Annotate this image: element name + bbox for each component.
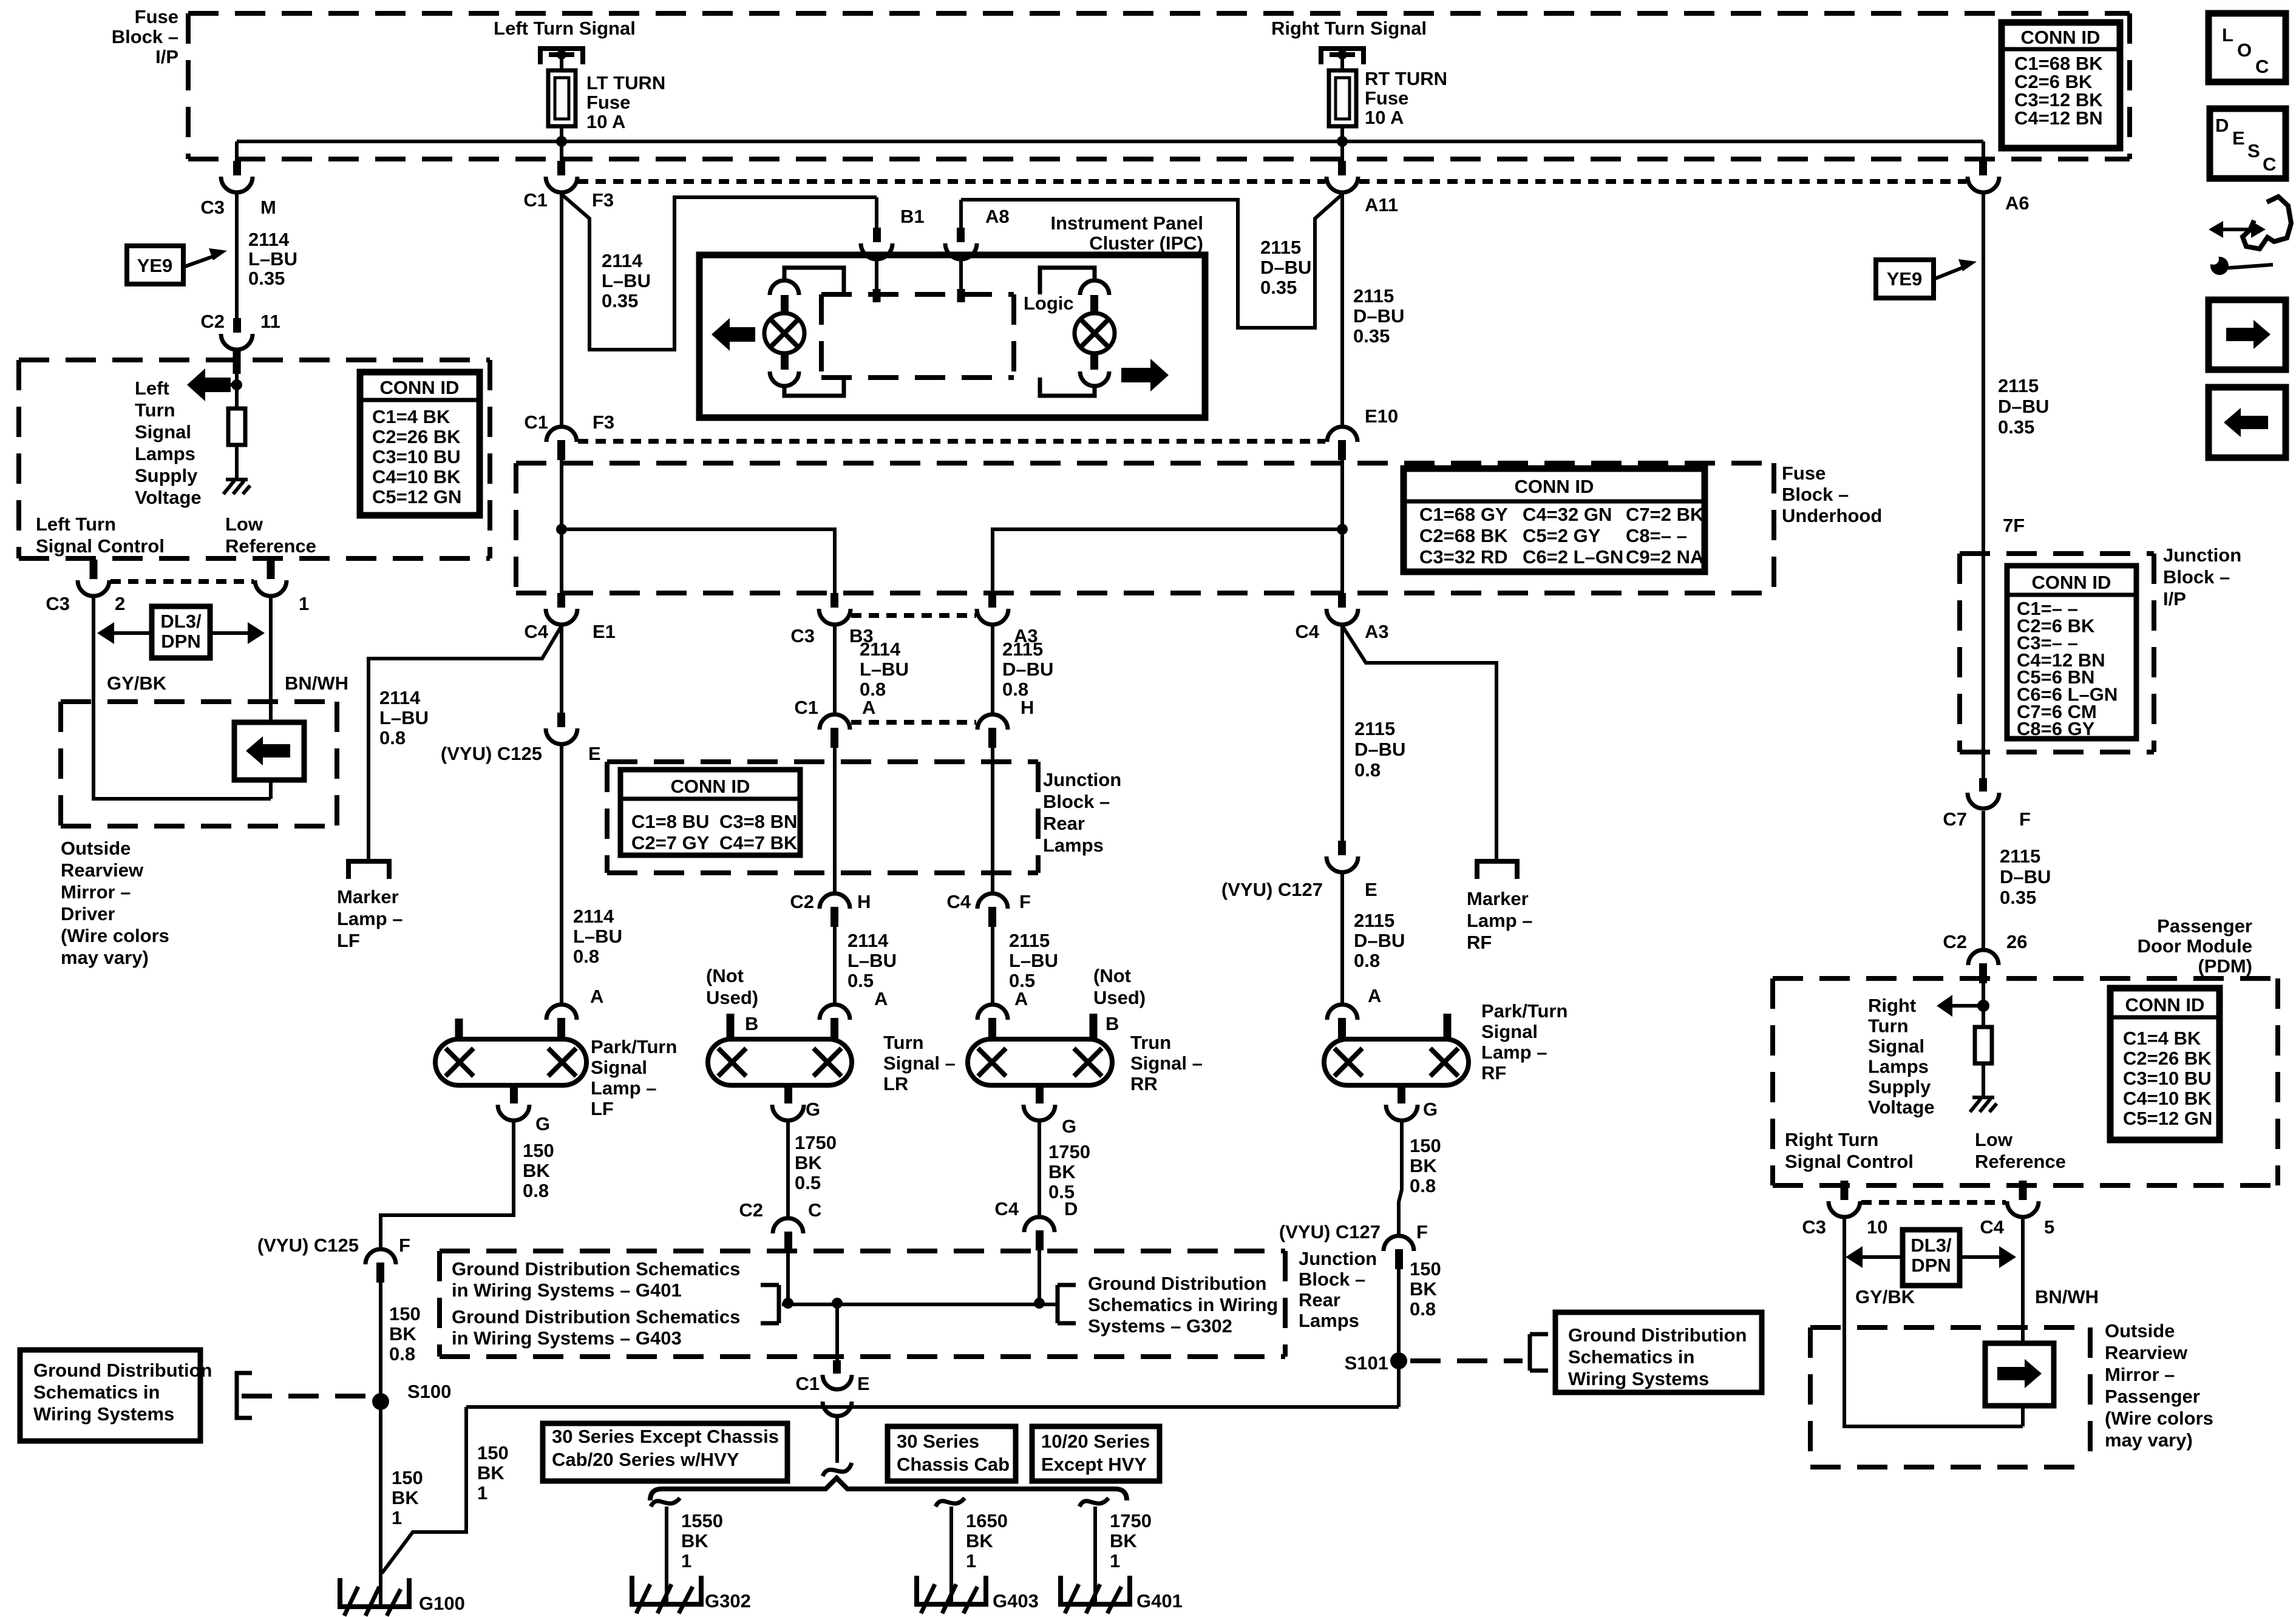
- svg-text:LF: LF: [591, 1098, 614, 1119]
- svg-text:Rearview: Rearview: [2105, 1342, 2188, 1363]
- svg-text:Marker: Marker: [1467, 888, 1529, 909]
- svg-text:C6=2 L–GN: C6=2 L–GN: [1523, 546, 1623, 568]
- svg-text:A: A: [874, 988, 888, 1009]
- svg-text:C1: C1: [523, 189, 548, 211]
- svg-text:L: L: [2222, 24, 2233, 46]
- svg-text:C5=12 GN: C5=12 GN: [2123, 1108, 2212, 1129]
- svg-text:BK: BK: [1410, 1278, 1437, 1300]
- svg-text:Driver: Driver: [61, 903, 115, 924]
- svg-text:Right Turn: Right Turn: [1785, 1129, 1878, 1150]
- svg-text:10/20 Series: 10/20 Series: [1041, 1431, 1150, 1452]
- svg-text:G403: G403: [993, 1590, 1039, 1612]
- svg-text:G: G: [1062, 1116, 1076, 1137]
- svg-text:E: E: [2232, 127, 2245, 149]
- svg-text:H: H: [857, 891, 871, 912]
- svg-text:Signal: Signal: [591, 1057, 647, 1078]
- svg-text:2114: 2114: [379, 687, 421, 708]
- svg-text:Used): Used): [706, 987, 758, 1008]
- svg-text:1650: 1650: [966, 1510, 1008, 1531]
- svg-text:Chassis Cab: Chassis Cab: [897, 1454, 1010, 1475]
- svg-text:Except HVY: Except HVY: [1041, 1454, 1147, 1475]
- svg-text:C2: C2: [790, 891, 814, 912]
- svg-text:A6: A6: [2005, 192, 2029, 214]
- svg-text:C8=6 GY: C8=6 GY: [2017, 718, 2095, 739]
- svg-text:Reference: Reference: [1975, 1151, 2066, 1172]
- svg-text:in Wiring Systems – G401: in Wiring Systems – G401: [452, 1280, 682, 1301]
- svg-text:L–BU: L–BU: [1009, 950, 1058, 971]
- svg-text:2: 2: [115, 593, 125, 614]
- svg-text:GY/BK: GY/BK: [1855, 1286, 1915, 1307]
- svg-text:C2=7 GY: C2=7 GY: [631, 832, 710, 853]
- svg-text:1750: 1750: [1048, 1141, 1090, 1162]
- svg-text:Right Turn Signal: Right Turn Signal: [1271, 18, 1427, 39]
- svg-text:B1: B1: [900, 206, 925, 227]
- svg-text:Signal Control: Signal Control: [36, 535, 165, 557]
- svg-text:Ground Distribution: Ground Distribution: [1088, 1273, 1266, 1294]
- svg-text:L–BU: L–BU: [248, 248, 297, 269]
- svg-text:C3=10 BU: C3=10 BU: [2123, 1068, 2212, 1089]
- svg-text:1: 1: [299, 593, 309, 614]
- svg-text:S100: S100: [407, 1381, 451, 1402]
- svg-text:C3=8 BN: C3=8 BN: [719, 811, 797, 832]
- svg-text:D–BU: D–BU: [2000, 866, 2051, 887]
- svg-text:Voltage: Voltage: [135, 487, 202, 508]
- svg-text:C2=68 BK: C2=68 BK: [1419, 525, 1508, 546]
- svg-text:11: 11: [260, 311, 280, 332]
- svg-text:C1: C1: [795, 1373, 820, 1394]
- svg-text:C3: C3: [790, 625, 815, 646]
- svg-text:C3=32 RD: C3=32 RD: [1419, 546, 1508, 568]
- svg-text:Reference: Reference: [225, 535, 316, 557]
- svg-text:CONN ID: CONN ID: [1515, 476, 1594, 497]
- svg-text:DPN: DPN: [1911, 1255, 1951, 1276]
- svg-text:C4: C4: [1295, 621, 1319, 642]
- svg-text:C1=68 GY: C1=68 GY: [1419, 504, 1508, 525]
- svg-text:L–BU: L–BU: [847, 950, 897, 971]
- svg-text:F: F: [1416, 1221, 1428, 1242]
- svg-text:30 Series: 30 Series: [897, 1431, 979, 1452]
- svg-text:C4=7 BK: C4=7 BK: [719, 832, 798, 853]
- svg-text:RT TURN: RT TURN: [1365, 68, 1447, 89]
- svg-text:C: C: [2255, 56, 2269, 77]
- svg-text:D–BU: D–BU: [1260, 257, 1311, 278]
- svg-text:Park/Turn: Park/Turn: [591, 1036, 677, 1057]
- svg-text:RR: RR: [1130, 1073, 1158, 1094]
- svg-text:Logic: Logic: [1024, 293, 1074, 314]
- svg-text:G: G: [535, 1113, 550, 1134]
- svg-text:C3: C3: [200, 197, 225, 218]
- svg-text:G: G: [1423, 1099, 1438, 1120]
- svg-text:Mirror –: Mirror –: [61, 881, 131, 903]
- svg-text:C2: C2: [1943, 931, 1967, 952]
- svg-text:D: D: [2215, 115, 2229, 136]
- svg-text:E1: E1: [593, 621, 616, 642]
- svg-text:Lamps: Lamps: [1868, 1056, 1929, 1077]
- svg-text:C: C: [2263, 154, 2276, 175]
- svg-text:2115: 2115: [1998, 375, 2039, 396]
- svg-text:Trun: Trun: [1130, 1032, 1171, 1053]
- svg-text:A11: A11: [1365, 194, 1398, 215]
- svg-text:(Wire colors: (Wire colors: [2105, 1408, 2213, 1429]
- svg-text:D–BU: D–BU: [1354, 930, 1405, 951]
- svg-text:E10: E10: [1365, 405, 1398, 427]
- svg-text:26: 26: [2006, 931, 2027, 952]
- svg-text:CONN ID: CONN ID: [2032, 572, 2111, 593]
- svg-text:150: 150: [392, 1467, 423, 1488]
- svg-text:A: A: [1368, 985, 1381, 1006]
- svg-text:A8: A8: [985, 206, 1010, 227]
- svg-text:Passenger: Passenger: [2157, 915, 2252, 937]
- svg-text:O: O: [2237, 39, 2252, 61]
- svg-text:BK: BK: [523, 1160, 550, 1181]
- svg-text:YE9: YE9: [1887, 268, 1923, 290]
- svg-text:BK: BK: [1410, 1155, 1437, 1176]
- svg-text:S: S: [2247, 140, 2260, 161]
- svg-text:Right: Right: [1868, 995, 1916, 1016]
- svg-text:GY/BK: GY/BK: [107, 673, 167, 694]
- svg-text:0.8: 0.8: [1410, 1175, 1436, 1196]
- svg-text:Park/Turn: Park/Turn: [1481, 1000, 1567, 1022]
- svg-text:D–BU: D–BU: [1998, 396, 2049, 417]
- svg-text:Supply: Supply: [1868, 1076, 1931, 1097]
- svg-text:Signal Control: Signal Control: [1785, 1151, 1914, 1172]
- svg-text:F: F: [1019, 891, 1031, 912]
- svg-text:F3: F3: [592, 189, 614, 211]
- svg-text:DL3/: DL3/: [160, 611, 202, 632]
- svg-text:BK: BK: [681, 1530, 708, 1551]
- svg-text:Schematics in Wiring: Schematics in Wiring: [1088, 1294, 1278, 1315]
- svg-text:Lamp –: Lamp –: [591, 1077, 657, 1099]
- svg-text:150: 150: [389, 1303, 421, 1324]
- svg-text:0.35: 0.35: [248, 268, 285, 289]
- svg-text:10: 10: [1867, 1216, 1887, 1238]
- svg-text:0.5: 0.5: [795, 1172, 821, 1193]
- svg-text:LT TURN: LT TURN: [586, 72, 665, 93]
- svg-text:Lamps: Lamps: [1043, 835, 1104, 856]
- svg-text:Block –: Block –: [112, 26, 178, 47]
- svg-text:C4=10 BK: C4=10 BK: [2123, 1088, 2212, 1109]
- svg-text:Ground Distribution Schematics: Ground Distribution Schematics: [452, 1306, 740, 1327]
- svg-text:Lamp –: Lamp –: [337, 908, 403, 929]
- svg-text:C3=10 BU: C3=10 BU: [372, 446, 461, 467]
- svg-text:(Not: (Not: [1093, 965, 1131, 986]
- svg-text:Schematics in: Schematics in: [33, 1381, 160, 1403]
- svg-text:Lamps: Lamps: [1299, 1310, 1359, 1331]
- svg-text:A: A: [1014, 988, 1028, 1009]
- svg-text:1750: 1750: [1110, 1510, 1152, 1531]
- svg-text:L–BU: L–BU: [573, 926, 622, 947]
- svg-text:Voltage: Voltage: [1868, 1097, 1935, 1118]
- svg-text:2115: 2115: [1354, 718, 1395, 739]
- svg-text:C8=– –: C8=– –: [1626, 525, 1687, 546]
- svg-text:Schematics in: Schematics in: [1568, 1346, 1694, 1368]
- svg-text:2115: 2115: [1354, 910, 1394, 931]
- svg-text:1750: 1750: [795, 1132, 837, 1153]
- svg-text:0.8: 0.8: [389, 1343, 415, 1364]
- svg-text:Signal –: Signal –: [1130, 1053, 1203, 1074]
- svg-text:1: 1: [392, 1507, 402, 1528]
- svg-text:C4=32 GN: C4=32 GN: [1523, 504, 1612, 525]
- svg-text:C1: C1: [794, 697, 818, 718]
- svg-text:D–BU: D–BU: [1353, 305, 1404, 327]
- svg-text:Block –: Block –: [1043, 791, 1110, 812]
- svg-text:E: E: [588, 743, 601, 764]
- svg-text:DL3/: DL3/: [1911, 1235, 1952, 1256]
- svg-text:C7: C7: [1943, 808, 1967, 830]
- svg-text:C2: C2: [200, 311, 225, 332]
- svg-text:C4: C4: [946, 891, 971, 912]
- svg-text:C1=8 BU: C1=8 BU: [631, 811, 709, 832]
- svg-text:150: 150: [1410, 1258, 1441, 1280]
- svg-text:2114: 2114: [847, 930, 889, 951]
- svg-text:Underhood: Underhood: [1782, 505, 1882, 526]
- svg-text:Cluster (IPC): Cluster (IPC): [1089, 232, 1203, 254]
- svg-text:150: 150: [477, 1442, 509, 1463]
- svg-text:CONN ID: CONN ID: [2125, 994, 2205, 1015]
- svg-text:BK: BK: [1110, 1530, 1137, 1551]
- svg-text:BK: BK: [1048, 1161, 1076, 1182]
- svg-text:C4: C4: [1980, 1216, 2004, 1238]
- svg-text:F: F: [399, 1235, 410, 1256]
- svg-text:A3: A3: [1365, 621, 1389, 642]
- svg-text:BK: BK: [795, 1152, 822, 1173]
- svg-text:D–BU: D–BU: [1354, 739, 1405, 760]
- svg-text:may vary): may vary): [2105, 1429, 2193, 1451]
- svg-text:(VYU) C125: (VYU) C125: [257, 1235, 359, 1256]
- svg-text:0.35: 0.35: [602, 290, 638, 311]
- svg-text:LF: LF: [337, 930, 360, 951]
- svg-text:in Wiring Systems – G403: in Wiring Systems – G403: [452, 1327, 682, 1349]
- svg-text:A: A: [862, 697, 875, 718]
- svg-text:C1: C1: [524, 412, 548, 433]
- svg-text:(VYU) C127: (VYU) C127: [1279, 1221, 1381, 1242]
- svg-text:2114: 2114: [573, 906, 614, 927]
- svg-text:Door Module: Door Module: [2138, 935, 2252, 957]
- svg-text:YE9: YE9: [137, 255, 173, 276]
- svg-text:Left: Left: [135, 378, 169, 399]
- svg-text:Fuse: Fuse: [1365, 87, 1408, 109]
- svg-text:BK: BK: [389, 1323, 416, 1344]
- svg-text:C5=12 GN: C5=12 GN: [372, 486, 461, 507]
- svg-text:Ground Distribution: Ground Distribution: [1568, 1324, 1747, 1346]
- svg-text:0.8: 0.8: [1410, 1298, 1436, 1320]
- svg-text:(Wire colors: (Wire colors: [61, 925, 169, 946]
- svg-text:0.8: 0.8: [573, 946, 599, 967]
- svg-text:Block –: Block –: [1299, 1269, 1365, 1290]
- svg-text:LR: LR: [883, 1073, 908, 1094]
- svg-text:C9=2 NA: C9=2 NA: [1626, 546, 1703, 568]
- svg-text:Mirror –: Mirror –: [2105, 1364, 2175, 1385]
- svg-text:C2=26 BK: C2=26 BK: [372, 426, 461, 447]
- svg-text:D: D: [1064, 1198, 1078, 1219]
- svg-text:C7=2 BK: C7=2 BK: [1626, 504, 1704, 525]
- svg-text:2114: 2114: [860, 639, 901, 660]
- svg-text:CONN ID: CONN ID: [2021, 27, 2101, 48]
- svg-text:10 A: 10 A: [1365, 107, 1404, 128]
- svg-text:0.8: 0.8: [379, 727, 406, 748]
- svg-text:C4: C4: [994, 1198, 1019, 1219]
- svg-text:C4: C4: [524, 621, 548, 642]
- svg-text:L–BU: L–BU: [602, 270, 651, 291]
- svg-text:G302: G302: [705, 1590, 751, 1612]
- svg-text:Block –: Block –: [2163, 566, 2230, 588]
- svg-text:Ground Distribution Schematics: Ground Distribution Schematics: [452, 1258, 740, 1280]
- svg-text:(PDM): (PDM): [2198, 955, 2252, 977]
- svg-text:Turn: Turn: [135, 399, 175, 421]
- svg-text:0.35: 0.35: [1260, 277, 1297, 298]
- svg-text:2114: 2114: [248, 229, 290, 250]
- svg-text:0.8: 0.8: [1354, 950, 1380, 971]
- svg-text:Junction: Junction: [1043, 769, 1121, 790]
- svg-text:Rear: Rear: [1299, 1289, 1340, 1310]
- svg-text:2115: 2115: [1353, 285, 1394, 307]
- svg-text:2115: 2115: [1009, 930, 1050, 951]
- svg-text:BN/WH: BN/WH: [285, 673, 348, 694]
- svg-text:Lamp –: Lamp –: [1481, 1042, 1547, 1063]
- svg-text:10 A: 10 A: [586, 111, 625, 132]
- svg-text:150: 150: [1410, 1135, 1441, 1156]
- svg-text:B: B: [745, 1013, 758, 1034]
- svg-text:Used): Used): [1093, 987, 1146, 1008]
- svg-text:(VYU) C127: (VYU) C127: [1221, 879, 1323, 900]
- svg-text:DPN: DPN: [161, 631, 200, 652]
- svg-text:1: 1: [681, 1550, 691, 1571]
- svg-text:CONN ID: CONN ID: [380, 377, 460, 398]
- svg-text:Outside: Outside: [2105, 1320, 2175, 1341]
- svg-text:Turn: Turn: [1868, 1015, 1909, 1037]
- svg-text:G401: G401: [1136, 1590, 1183, 1612]
- svg-text:1: 1: [1110, 1550, 1120, 1571]
- svg-text:2115: 2115: [2000, 846, 2040, 867]
- svg-text:Junction: Junction: [2163, 544, 2241, 566]
- svg-text:2115: 2115: [1002, 639, 1043, 660]
- svg-text:BK: BK: [392, 1487, 419, 1508]
- svg-text:Lamps: Lamps: [135, 443, 195, 464]
- svg-text:C3: C3: [46, 593, 70, 614]
- svg-text:I/P: I/P: [155, 46, 178, 67]
- svg-text:may vary): may vary): [61, 947, 149, 968]
- svg-text:Fuse: Fuse: [1782, 463, 1826, 484]
- svg-text:Rear: Rear: [1043, 813, 1085, 834]
- svg-text:S101: S101: [1345, 1352, 1388, 1374]
- svg-text:Fuse: Fuse: [586, 92, 630, 113]
- svg-text:A: A: [590, 986, 603, 1007]
- svg-text:(VYU) C125: (VYU) C125: [441, 743, 542, 764]
- svg-text:C5=2 GY: C5=2 GY: [1523, 525, 1601, 546]
- svg-text:Signal: Signal: [1481, 1021, 1538, 1042]
- svg-text:H: H: [1021, 697, 1034, 718]
- svg-text:Cab/20 Series w/HVY: Cab/20 Series w/HVY: [552, 1449, 739, 1470]
- svg-text:1550: 1550: [681, 1510, 723, 1531]
- svg-text:Wiring Systems: Wiring Systems: [1568, 1368, 1709, 1389]
- svg-text:1: 1: [477, 1482, 487, 1503]
- svg-text:E: E: [857, 1373, 870, 1394]
- svg-text:C2: C2: [739, 1199, 763, 1221]
- svg-text:0.35: 0.35: [1353, 325, 1390, 347]
- svg-text:C4=12 BN: C4=12 BN: [2014, 107, 2103, 129]
- svg-text:30 Series Except Chassis: 30 Series Except Chassis: [552, 1426, 779, 1447]
- svg-text:RF: RF: [1467, 932, 1492, 953]
- svg-text:Ground Distribution: Ground Distribution: [33, 1360, 212, 1381]
- svg-text:I/P: I/P: [2163, 588, 2186, 609]
- svg-text:L–BU: L–BU: [860, 659, 909, 680]
- svg-text:Junction: Junction: [1299, 1248, 1377, 1269]
- svg-text:2115: 2115: [1260, 237, 1301, 258]
- svg-text:0.8: 0.8: [523, 1180, 549, 1201]
- svg-text:Signal –: Signal –: [883, 1053, 956, 1074]
- svg-text:Passenger: Passenger: [2105, 1386, 2200, 1407]
- svg-text:G100: G100: [419, 1593, 465, 1614]
- svg-text:BK: BK: [477, 1462, 504, 1483]
- svg-text:1: 1: [966, 1550, 976, 1571]
- svg-text:0.35: 0.35: [1998, 416, 2034, 438]
- svg-text:Left Turn Signal: Left Turn Signal: [494, 18, 636, 39]
- svg-text:0.8: 0.8: [1354, 759, 1381, 781]
- svg-text:(Not: (Not: [706, 965, 744, 986]
- svg-text:RF: RF: [1481, 1062, 1506, 1083]
- svg-text:C1=4 BK: C1=4 BK: [372, 406, 450, 427]
- svg-text:5: 5: [2044, 1216, 2054, 1238]
- svg-text:C3: C3: [1802, 1216, 1826, 1238]
- svg-text:C4=10 BK: C4=10 BK: [372, 466, 461, 487]
- svg-text:F3: F3: [593, 412, 614, 433]
- svg-text:BK: BK: [966, 1530, 993, 1551]
- svg-text:2114: 2114: [602, 250, 643, 271]
- svg-text:0.35: 0.35: [2000, 887, 2036, 908]
- svg-text:7F: 7F: [2003, 515, 2025, 536]
- svg-text:L–BU: L–BU: [379, 707, 429, 728]
- svg-text:Low: Low: [225, 514, 263, 535]
- svg-text:C1=4 BK: C1=4 BK: [2123, 1028, 2201, 1049]
- svg-text:Supply: Supply: [135, 465, 198, 486]
- svg-text:Fuse: Fuse: [135, 6, 178, 27]
- svg-text:Turn: Turn: [883, 1032, 924, 1053]
- svg-text:Rearview: Rearview: [61, 859, 144, 881]
- svg-text:Wiring Systems: Wiring Systems: [33, 1403, 174, 1425]
- svg-text:150: 150: [523, 1140, 554, 1161]
- svg-text:B: B: [1106, 1013, 1119, 1034]
- svg-text:F: F: [2019, 808, 2031, 830]
- svg-text:Instrument Panel: Instrument Panel: [1051, 212, 1204, 234]
- svg-text:CONN ID: CONN ID: [671, 776, 750, 797]
- svg-text:Outside: Outside: [61, 838, 131, 859]
- svg-text:Systems – G302: Systems – G302: [1088, 1315, 1232, 1337]
- svg-text:Lamp –: Lamp –: [1467, 910, 1533, 931]
- svg-text:C2=26 BK: C2=26 BK: [2123, 1048, 2212, 1069]
- svg-text:Marker: Marker: [337, 886, 399, 907]
- svg-text:Block –: Block –: [1782, 484, 1849, 505]
- svg-text:D–BU: D–BU: [1002, 659, 1053, 680]
- svg-text:Left Turn: Left Turn: [36, 514, 116, 535]
- svg-text:G: G: [806, 1099, 820, 1120]
- svg-text:M: M: [260, 197, 276, 218]
- svg-text:Low: Low: [1975, 1129, 2013, 1150]
- svg-text:Signal: Signal: [135, 421, 191, 442]
- svg-text:E: E: [1365, 879, 1377, 900]
- svg-text:C: C: [808, 1199, 821, 1221]
- svg-text:0.5: 0.5: [847, 970, 874, 991]
- svg-text:BN/WH: BN/WH: [2035, 1286, 2099, 1307]
- svg-text:Signal: Signal: [1868, 1036, 1924, 1057]
